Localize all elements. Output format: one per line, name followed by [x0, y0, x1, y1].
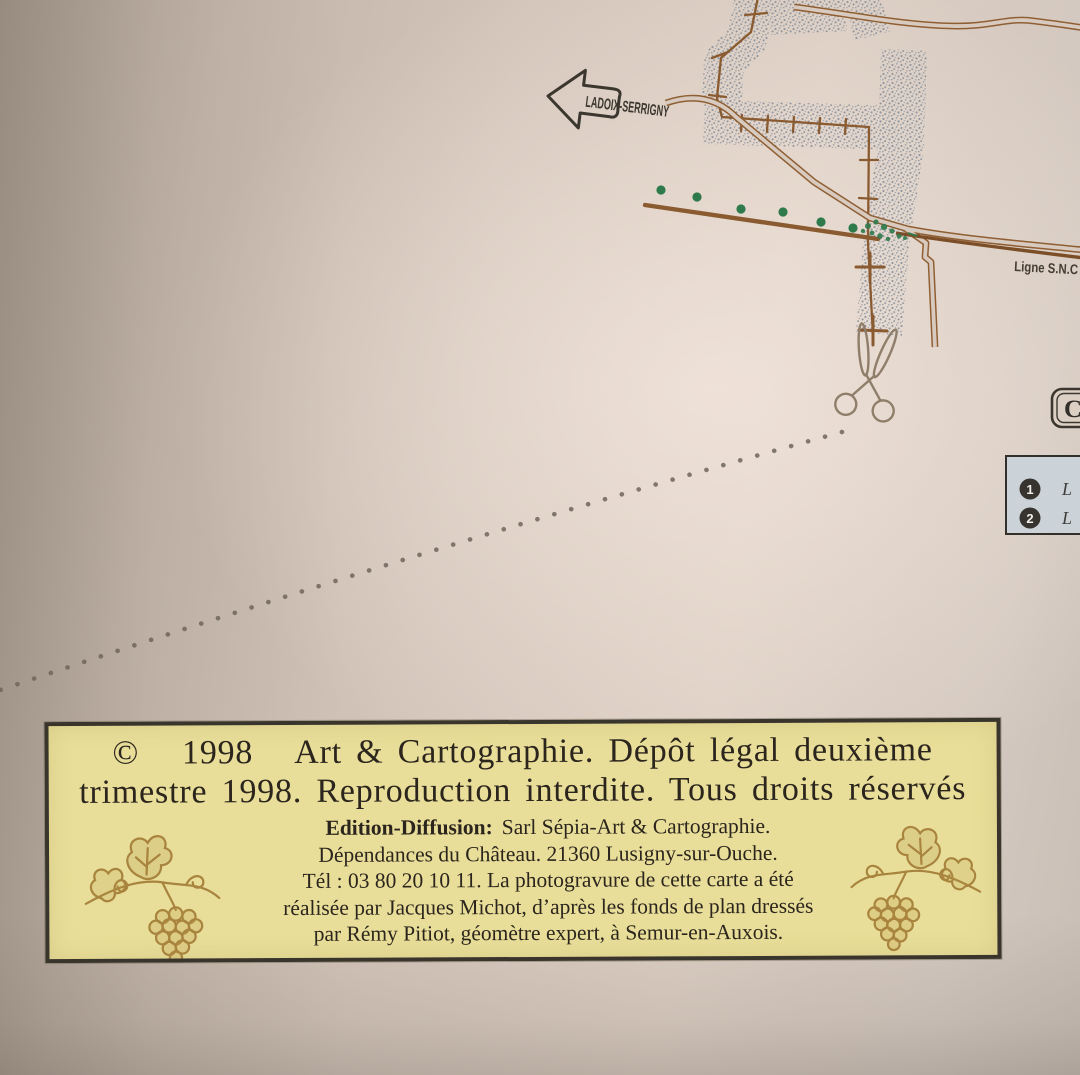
cartouche-letter: C	[1064, 396, 1080, 423]
copyright-line-1: © 1998 Art & Cartographie. Dépôt légal d…	[49, 730, 997, 773]
edition-text: Sarl Sépia-Art & Cartographie.	[502, 814, 771, 839]
name-cartouche: C	[1052, 389, 1080, 427]
credit-line-2: par Rémy Pitiot, géomètre expert, à Semu…	[99, 918, 997, 948]
legend-panel: 1 L 2 L	[1006, 456, 1080, 534]
legend-number: 2	[1026, 511, 1033, 526]
road-sign: LADOIX-SERRIGNY	[545, 66, 674, 138]
legend-number: 1	[1026, 482, 1033, 497]
copyright-line-2: trimestre 1998. Reproduction interdite. …	[49, 769, 997, 812]
stippled-boundary-band	[704, 0, 904, 334]
address-line: Dépendances du Château. 21360 Lusigny-su…	[99, 838, 997, 868]
edition-label: Edition-Diffusion:	[325, 815, 492, 840]
road-sign-label: LADOIX-SERRIGNY	[584, 94, 670, 121]
legend-label: L	[1061, 508, 1072, 528]
tree-lined-track	[645, 205, 878, 239]
railway-label: Ligne S.N.C	[1014, 258, 1079, 277]
credit-line-1: réalisée par Jacques Michot, d’après les…	[99, 891, 997, 921]
scissors-icon	[834, 320, 908, 423]
phone-line: Tél : 03 80 20 10 11. La photogravure de…	[99, 865, 997, 895]
dotted-cut-line	[0, 432, 842, 690]
copyright-imprint-box: © 1998 Art & Cartographie. Dépôt légal d…	[44, 718, 1001, 963]
edition-line: Edition-Diffusion:Sarl Sépia-Art & Carto…	[99, 812, 997, 842]
legend-label: L	[1061, 479, 1072, 499]
